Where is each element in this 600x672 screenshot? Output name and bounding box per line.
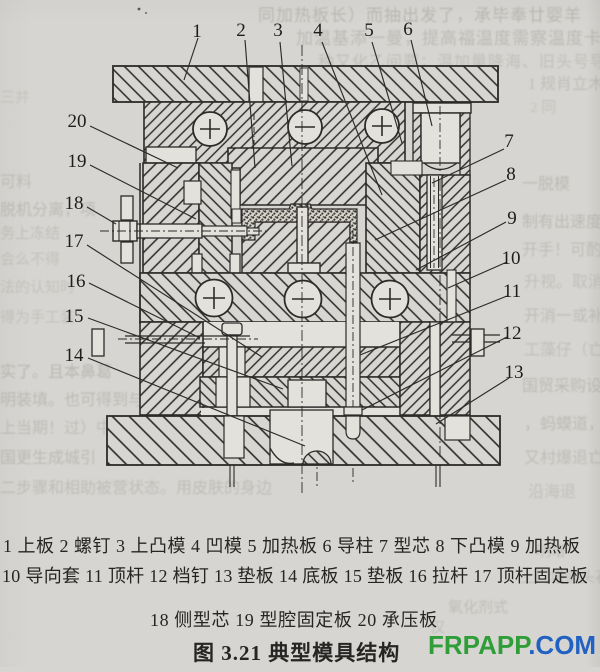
svg-text:15: 15	[65, 306, 84, 327]
svg-text:5: 5	[364, 20, 374, 41]
svg-text:10: 10	[502, 248, 521, 269]
svg-text:14: 14	[65, 345, 85, 366]
svg-text:7: 7	[504, 131, 514, 152]
svg-text:12: 12	[503, 323, 522, 344]
svg-text:11: 11	[503, 281, 521, 302]
svg-text:4: 4	[313, 20, 323, 41]
svg-text:19: 19	[68, 151, 87, 172]
svg-text:17: 17	[65, 231, 84, 252]
svg-text:16: 16	[67, 271, 86, 292]
svg-text:13: 13	[505, 362, 524, 383]
svg-text:8: 8	[506, 164, 516, 185]
svg-text:9: 9	[507, 208, 517, 229]
svg-text:20: 20	[68, 111, 87, 132]
svg-text:18: 18	[65, 193, 84, 214]
svg-text:6: 6	[403, 19, 413, 40]
svg-text:3: 3	[273, 20, 283, 41]
svg-text:2: 2	[236, 20, 246, 41]
svg-text:1: 1	[192, 21, 202, 42]
